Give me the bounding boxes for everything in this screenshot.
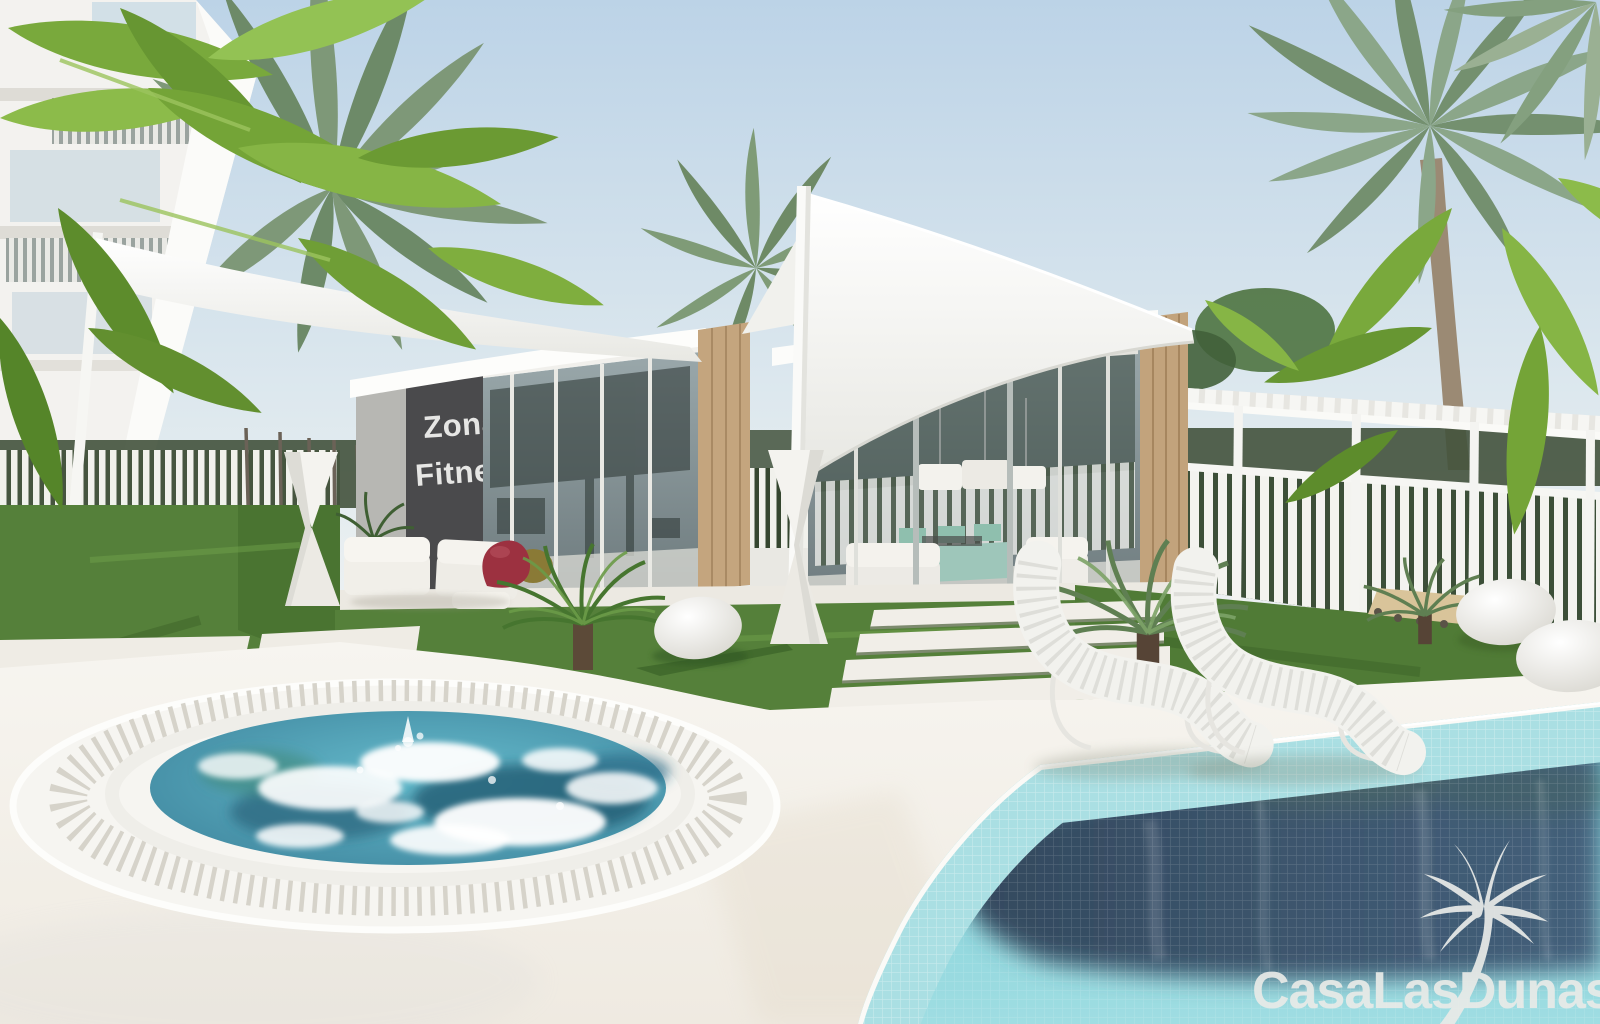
wood-panel [698,322,750,590]
jacuzzi [13,682,777,930]
resort-render: Zona Fitness [0,0,1600,1024]
watermark-text: CasaLasDunas [1252,962,1600,1020]
